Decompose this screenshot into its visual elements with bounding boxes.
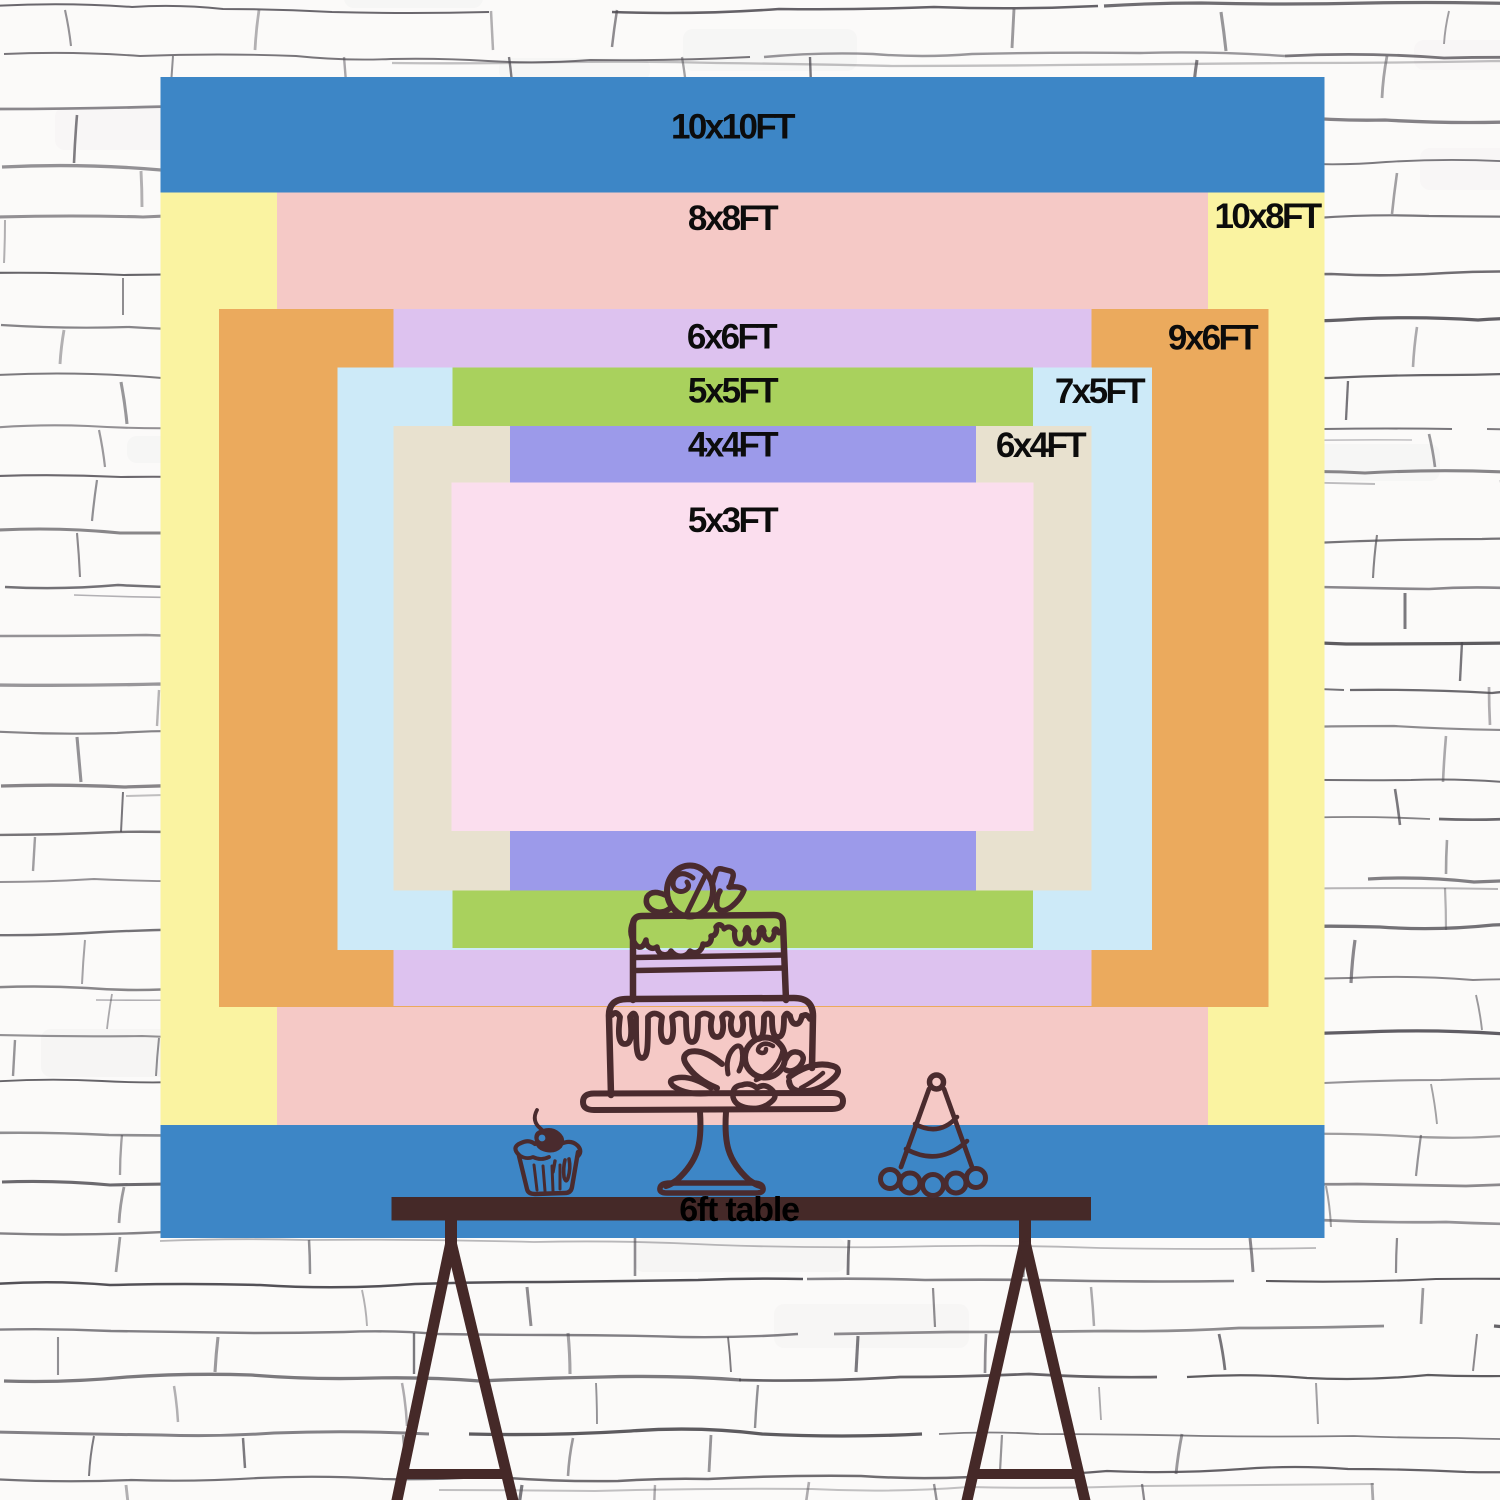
svg-text:10x8FT: 10x8FT [1214, 197, 1321, 236]
svg-text:7x5FT: 7x5FT [1055, 372, 1145, 411]
svg-text:6x6FT: 6x6FT [687, 318, 777, 357]
svg-text:10x10FT: 10x10FT [671, 108, 795, 147]
svg-text:6ft table: 6ft table [679, 1191, 799, 1229]
svg-text:9x6FT: 9x6FT [1168, 319, 1258, 358]
svg-text:6x4FT: 6x4FT [996, 426, 1086, 465]
svg-text:5x3FT: 5x3FT [688, 501, 778, 540]
svg-text:8x8FT: 8x8FT [688, 199, 778, 238]
svg-text:4x4FT: 4x4FT [688, 426, 778, 465]
svg-text:5x5FT: 5x5FT [688, 372, 778, 411]
